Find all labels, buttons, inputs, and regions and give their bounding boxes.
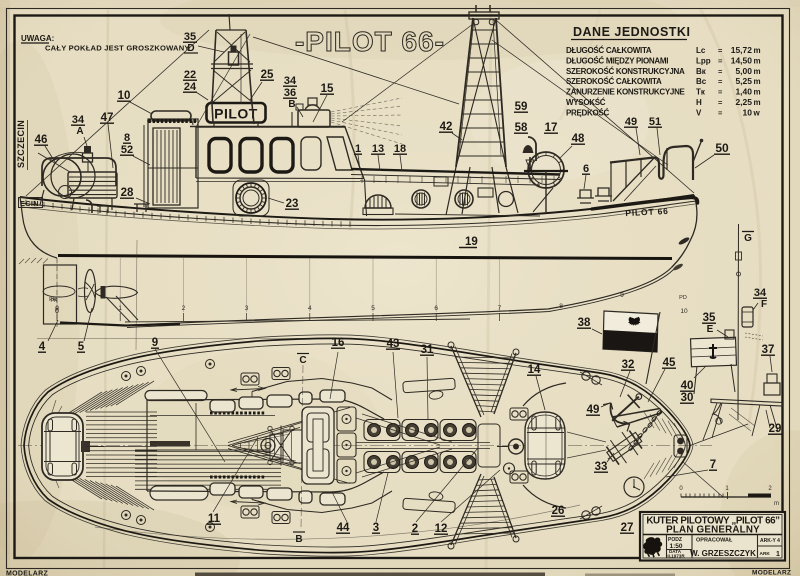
svg-text:49: 49 (625, 116, 637, 128)
svg-text:ARK: ARK (760, 551, 771, 557)
svg-text:36: 36 (284, 87, 296, 99)
svg-text:1,40: 1,40 (735, 87, 752, 97)
svg-text:10: 10 (118, 90, 131, 102)
svg-text:49: 49 (587, 404, 600, 416)
svg-text:24: 24 (184, 81, 197, 93)
svg-text:19: 19 (465, 236, 478, 248)
svg-text:=: = (718, 77, 723, 86)
svg-text:31: 31 (421, 344, 434, 356)
svg-text:=: = (718, 108, 723, 117)
svg-text:15: 15 (321, 83, 334, 95)
svg-text:MODELARZ: MODELARZ (752, 570, 791, 576)
svg-text:CAŁY POKŁAD JEST GROSZKOWANY: CAŁY POKŁAD JEST GROSZKOWANY (45, 44, 190, 53)
svg-text:14,50: 14,50 (731, 55, 753, 65)
svg-text:9: 9 (152, 337, 158, 349)
svg-text:Bc: Bc (696, 77, 707, 86)
svg-text:H: H (696, 98, 702, 107)
svg-text:E: E (707, 324, 714, 335)
svg-text:8: 8 (124, 132, 130, 144)
svg-text:18: 18 (394, 143, 406, 155)
svg-text:59: 59 (515, 101, 528, 113)
svg-text:9: 9 (620, 292, 624, 299)
svg-text:5: 5 (78, 341, 85, 353)
svg-text:25: 25 (261, 69, 274, 81)
svg-text:=: = (718, 88, 723, 97)
svg-text:=: = (718, 67, 723, 76)
svg-text:33: 33 (595, 461, 608, 473)
svg-text:34: 34 (72, 114, 85, 126)
svg-text:15,72: 15,72 (731, 45, 753, 55)
svg-text:WYSOKŚĆ: WYSOKŚĆ (566, 98, 606, 107)
svg-text:0: 0 (55, 308, 59, 315)
svg-text:SZEROKOŚĆ CAŁKOWITA: SZEROKOŚĆ CAŁKOWITA (566, 77, 662, 86)
svg-text:8: 8 (559, 303, 563, 310)
svg-text:23: 23 (286, 198, 299, 210)
svg-text:SZCZECIN: SZCZECIN (16, 120, 26, 168)
svg-text:52: 52 (121, 144, 133, 156)
svg-text:DŁUGOŚĆ CAŁKOWITA: DŁUGOŚĆ CAŁKOWITA (566, 46, 652, 55)
svg-text:5,00: 5,00 (735, 66, 752, 76)
svg-text:V: V (696, 108, 702, 117)
svg-text:-PILOT 66-: -PILOT 66- (295, 26, 445, 57)
svg-text:32: 32 (622, 359, 635, 371)
svg-text:46: 46 (35, 134, 48, 146)
svg-text:17: 17 (545, 122, 558, 134)
svg-text:D: D (187, 43, 194, 54)
svg-text:m: m (754, 88, 761, 97)
svg-text:W. GRZESZCZYK: W. GRZESZCZYK (690, 549, 756, 558)
svg-text:DANE JEDNOSTKI: DANE JEDNOSTKI (573, 25, 690, 39)
svg-text:27: 27 (621, 522, 634, 534)
svg-text:PILOT: PILOT (214, 106, 258, 122)
svg-text:37: 37 (762, 344, 775, 356)
svg-text:34: 34 (284, 75, 297, 87)
svg-text:Lc: Lc (696, 46, 706, 55)
svg-text:PD: PD (679, 295, 687, 301)
svg-text:38: 38 (578, 317, 591, 329)
svg-text:45: 45 (663, 357, 676, 369)
svg-text:Tк: Tк (696, 88, 706, 97)
svg-text:50: 50 (715, 141, 729, 155)
svg-text:w: w (753, 108, 761, 117)
svg-text:ARK-Y 4: ARK-Y 4 (760, 538, 780, 544)
svg-text:5,25: 5,25 (735, 76, 752, 86)
svg-text:34: 34 (754, 287, 767, 299)
svg-text:G: G (744, 233, 752, 244)
svg-text:22: 22 (184, 69, 196, 81)
svg-text:A: A (76, 126, 83, 137)
svg-text:PR: PR (49, 297, 57, 303)
svg-text:II.1973R: II.1973R (667, 554, 685, 559)
svg-text:51: 51 (649, 116, 661, 128)
svg-text:16: 16 (332, 337, 345, 349)
svg-text:DŁUGOŚĆ MIĘDZY PIONAMI: DŁUGOŚĆ MIĘDZY PIONAMI (566, 56, 668, 65)
svg-text:42: 42 (440, 121, 453, 133)
svg-text:30: 30 (681, 392, 694, 404)
svg-text:m: m (754, 98, 761, 107)
svg-text:=: = (718, 46, 723, 55)
svg-text:MODELARZ: MODELARZ (6, 571, 48, 576)
svg-text:11: 11 (208, 513, 221, 525)
svg-text:35: 35 (184, 31, 196, 43)
svg-text:Lpp: Lpp (696, 56, 711, 65)
svg-text:1: 1 (776, 551, 780, 558)
svg-text:1: 1 (355, 143, 361, 155)
svg-text:PRĘDKOŚĆ: PRĘDKOŚĆ (566, 108, 609, 117)
svg-text:29: 29 (769, 423, 782, 435)
svg-text:43: 43 (387, 338, 400, 350)
svg-text:m: m (754, 46, 761, 55)
svg-text:35: 35 (703, 312, 716, 324)
svg-text:2,25: 2,25 (735, 97, 752, 107)
svg-text:4: 4 (39, 341, 46, 353)
svg-text:6: 6 (583, 163, 589, 175)
svg-text:58: 58 (515, 122, 528, 134)
svg-text:48: 48 (572, 133, 585, 145)
svg-text:ECIN: ECIN (20, 199, 39, 208)
svg-text:F: F (761, 299, 767, 310)
svg-text:14: 14 (528, 364, 541, 376)
svg-text:=: = (718, 56, 723, 65)
svg-text:ZANURZENIE KONSTRUKCYJNE: ZANURZENIE KONSTRUKCYJNE (566, 88, 686, 97)
svg-text:C: C (299, 355, 306, 366)
svg-text:m: m (754, 56, 761, 65)
svg-text:28: 28 (121, 187, 134, 199)
svg-text:3: 3 (373, 522, 379, 534)
svg-text:7: 7 (710, 459, 716, 471)
svg-text:=: = (718, 98, 723, 107)
svg-text:13: 13 (372, 143, 384, 155)
svg-text:OPRACOWAŁ: OPRACOWAŁ (696, 538, 733, 544)
svg-text:SZEROKOŚĆ KONSTRUKCYJNA: SZEROKOŚĆ KONSTRUKCYJNA (566, 67, 685, 76)
svg-text:2: 2 (412, 523, 418, 535)
svg-text:B: B (288, 99, 295, 110)
svg-text:UWAGA:: UWAGA: (21, 34, 54, 43)
svg-text:Bк: Bк (696, 67, 707, 76)
svg-text:40: 40 (681, 380, 694, 392)
svg-text:10: 10 (680, 308, 688, 315)
svg-text:m: m (754, 77, 761, 86)
svg-text:44: 44 (337, 522, 350, 534)
svg-text:m: m (774, 501, 779, 507)
svg-text:m: m (754, 67, 761, 76)
svg-text:10: 10 (743, 107, 753, 117)
